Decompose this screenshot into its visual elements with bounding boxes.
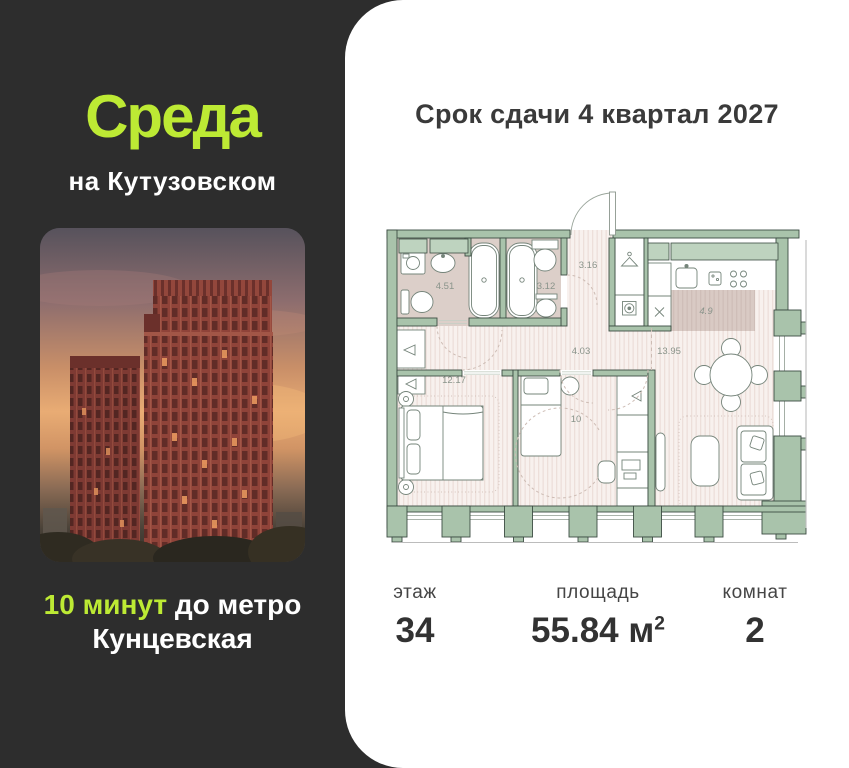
wardrobe-icon — [615, 238, 644, 326]
nightstand-2-icon — [399, 480, 414, 495]
logo-title: Среда — [0, 82, 345, 151]
sofa-icon — [737, 426, 773, 500]
tower-main — [144, 280, 273, 562]
stat-rooms: комнат 2 — [722, 582, 787, 651]
tv-console-icon — [656, 433, 665, 491]
kitchen-floor-zone — [671, 290, 755, 331]
toilet-2-icon — [536, 294, 557, 317]
logo-subtitle: на Кутузовском — [0, 166, 345, 197]
floor-plan: 4.51 3.12 3.16 4.03 12.17 10 13.95 4.9 — [385, 190, 815, 552]
double-bed-icon — [399, 406, 483, 480]
single-bed-icon — [521, 374, 561, 456]
washing-machine-icon — [401, 252, 425, 274]
room-label-bedroom: 12.17 — [442, 375, 466, 386]
pouf-icon — [561, 377, 579, 395]
metro-text: до метро — [175, 589, 302, 620]
coffee-table-icon — [691, 436, 719, 486]
building-illustration — [40, 228, 305, 562]
entrance-door-icon — [571, 192, 616, 235]
desk-chair-icon — [598, 461, 615, 483]
room-label-hall: 3.16 — [579, 260, 598, 271]
fridge-icon — [648, 263, 671, 330]
deadline-title: Срок сдачи 4 квартал 2027 — [345, 99, 849, 130]
metro-line1: 10 минут до метро — [0, 588, 345, 622]
stat-area-value: 55.84 м2 — [531, 611, 665, 651]
building-photo — [40, 228, 305, 562]
corridor-wardrobe-icon — [397, 330, 425, 368]
stat-floor-value: 34 — [393, 611, 436, 651]
room-label-bathroom-2: 3.12 — [537, 281, 556, 292]
stat-floor-label: этаж — [393, 582, 436, 604]
stat-floor: этаж 34 — [393, 582, 436, 651]
room-label-corridor: 4.03 — [572, 346, 591, 357]
metro-minutes: 10 минут — [44, 589, 167, 620]
metro-station: Кунцевская — [0, 622, 345, 656]
room-label-bathroom: 4.51 — [436, 281, 455, 292]
sink-icon — [431, 254, 455, 273]
kitchen-sink-icon — [676, 264, 697, 288]
bedroom-dresser-icon — [398, 374, 425, 394]
brand-panel: Среда на Кутузовском — [0, 0, 345, 768]
room-label-bedroom-2: 10 — [571, 414, 582, 425]
stat-rooms-label: комнат — [722, 582, 787, 604]
room-label-living: 13.95 — [657, 346, 681, 357]
room-label-kitchen: 4.9 — [699, 306, 713, 317]
stat-area-label: площадь — [531, 582, 665, 604]
bathtub-icon — [469, 243, 499, 318]
sink-2-icon — [532, 240, 558, 271]
stat-rooms-value: 2 — [722, 611, 787, 651]
nightstand-icon — [399, 392, 414, 407]
stat-area: площадь 55.84 м2 — [531, 582, 665, 651]
toilet-icon — [401, 290, 433, 314]
desk-unit-icon — [617, 375, 648, 506]
metro-info: 10 минут до метро Кунцевская — [0, 588, 345, 656]
apartment-card: Срок сдачи 4 квартал 2027 — [345, 0, 849, 768]
bathtub-2-icon — [507, 243, 537, 318]
tower-secondary — [70, 356, 140, 562]
